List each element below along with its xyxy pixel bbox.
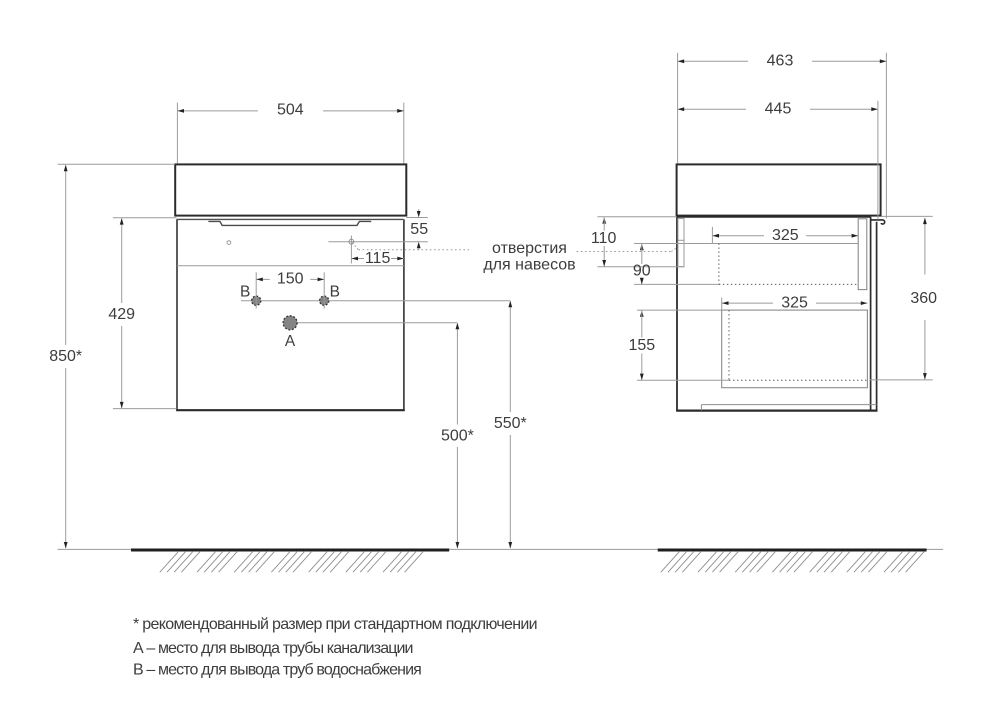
svg-text:отверстия: отверстия [492,240,567,257]
svg-text:445: 445 [765,100,792,117]
svg-text:463: 463 [767,52,794,69]
svg-text:* рекомендованный размер при с: * рекомендованный размер при стандартном… [133,616,537,633]
svg-text:В: В [240,283,250,300]
svg-text:155: 155 [628,337,655,354]
svg-text:429: 429 [108,306,135,323]
svg-text:90: 90 [633,263,651,280]
svg-text:110: 110 [591,230,617,247]
svg-text:850*: 850* [49,348,82,365]
svg-text:А – место для вывода трубы кан: А – место для вывода трубы канализации [133,640,413,657]
svg-text:500*: 500* [441,427,474,444]
svg-text:325: 325 [772,227,799,244]
svg-text:для навесов: для навесов [483,256,575,273]
svg-text:55: 55 [410,221,428,238]
svg-text:325: 325 [781,294,808,311]
svg-text:В – место для вывода труб водо: В – место для вывода труб водоснабжения [133,661,421,678]
svg-text:А: А [285,333,296,350]
svg-text:360: 360 [910,290,937,307]
svg-text:150: 150 [277,271,304,288]
svg-text:550*: 550* [494,415,527,432]
svg-text:504: 504 [277,102,304,119]
svg-text:115: 115 [365,250,391,267]
svg-text:В: В [330,283,340,300]
